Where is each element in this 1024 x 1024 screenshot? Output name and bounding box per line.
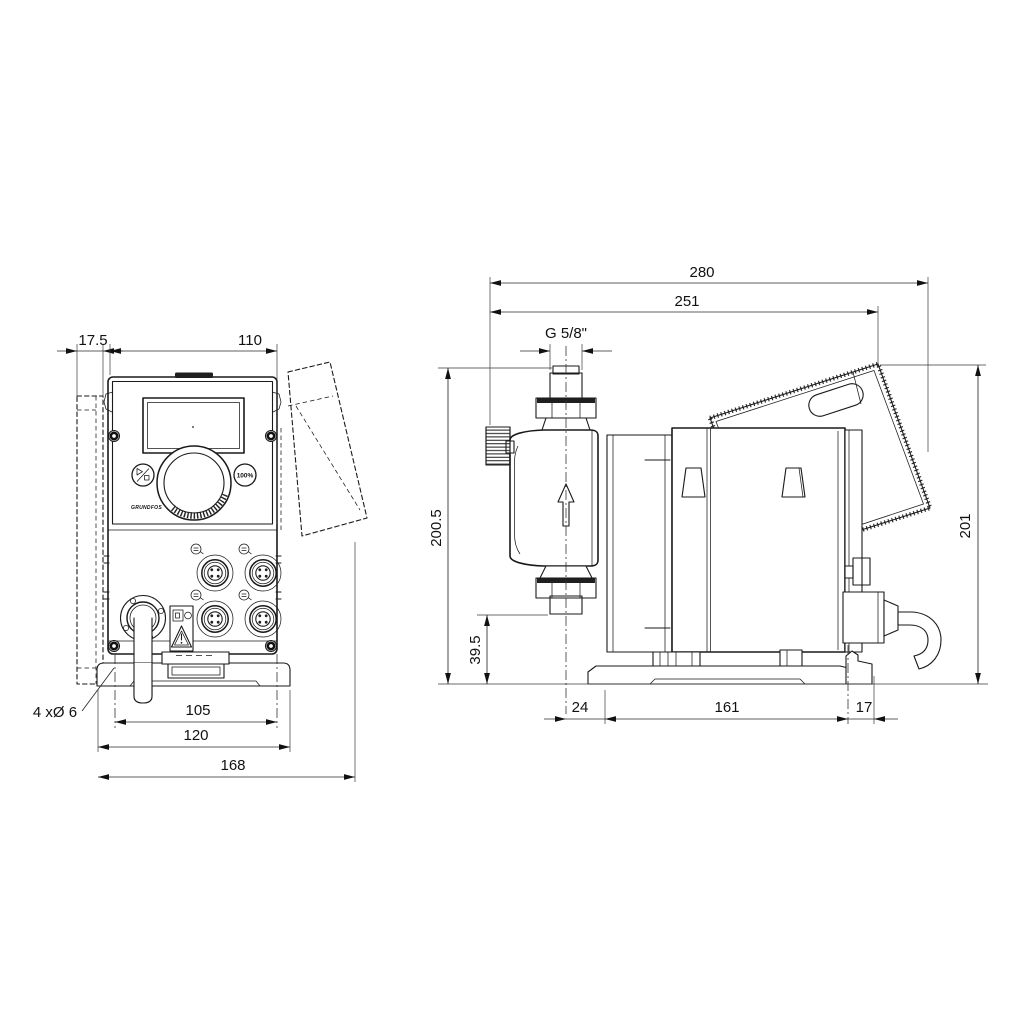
head-body <box>510 430 598 566</box>
percent-button-label: 100% <box>237 473 254 480</box>
lcd-display <box>143 398 244 453</box>
housing-tab <box>782 468 805 497</box>
display-dot <box>192 426 194 428</box>
svg-text:4 xØ 6: 4 xØ 6 <box>33 704 77 721</box>
svg-text:110: 110 <box>238 332 262 349</box>
top-tab <box>175 373 213 379</box>
dim-plate-width: 120 <box>98 690 290 752</box>
power-cable-front-lower <box>134 663 152 703</box>
drive-housing <box>607 428 862 652</box>
pump-head-ghost-outline <box>77 396 103 684</box>
front-view: 100% GRUNDFOS <box>33 332 367 782</box>
mounting-plate-side <box>588 650 872 684</box>
dim-valve-height: 39.5 <box>467 615 548 684</box>
svg-text:280: 280 <box>689 264 714 281</box>
cover-open-ghost-outline <box>281 362 367 536</box>
svg-text:200.5: 200.5 <box>428 509 445 547</box>
vent-valve <box>486 427 514 465</box>
svg-text:G 5/8": G 5/8" <box>545 325 587 342</box>
svg-text:17.5: 17.5 <box>78 332 107 349</box>
power-cable-side <box>898 612 941 669</box>
click-wheel-knob[interactable] <box>157 446 231 520</box>
svg-text:105: 105 <box>185 702 210 719</box>
svg-text:201: 201 <box>957 513 974 538</box>
svg-text:39.5: 39.5 <box>467 635 484 664</box>
dim-hole-spacing: 105 <box>115 702 277 722</box>
svg-text:120: 120 <box>183 727 208 744</box>
rear-foot <box>846 651 872 684</box>
grundfos-logo: GRUNDFOS <box>131 505 162 511</box>
side-view: 280 251 G 5/8" 200.5 39.5 <box>428 264 988 724</box>
dim-head-offset: 24 <box>544 690 605 724</box>
technical-drawing: 100% GRUNDFOS <box>0 0 1024 1024</box>
percent-button[interactable]: 100% <box>234 464 256 486</box>
din-rail-clamp <box>162 652 229 678</box>
dim-plate-length: 161 <box>605 699 848 719</box>
dimensional-drawing-page: 100% GRUNDFOS <box>0 0 1024 1024</box>
warning-label <box>170 606 193 651</box>
svg-text:251: 251 <box>674 293 699 310</box>
dosing-head <box>486 366 598 614</box>
run-stop-button[interactable] <box>132 464 154 486</box>
svg-text:161: 161 <box>714 699 739 716</box>
svg-text:17: 17 <box>856 699 873 716</box>
housing-tab <box>682 468 705 497</box>
svg-text:168: 168 <box>220 757 245 774</box>
svg-text:24: 24 <box>572 699 589 716</box>
